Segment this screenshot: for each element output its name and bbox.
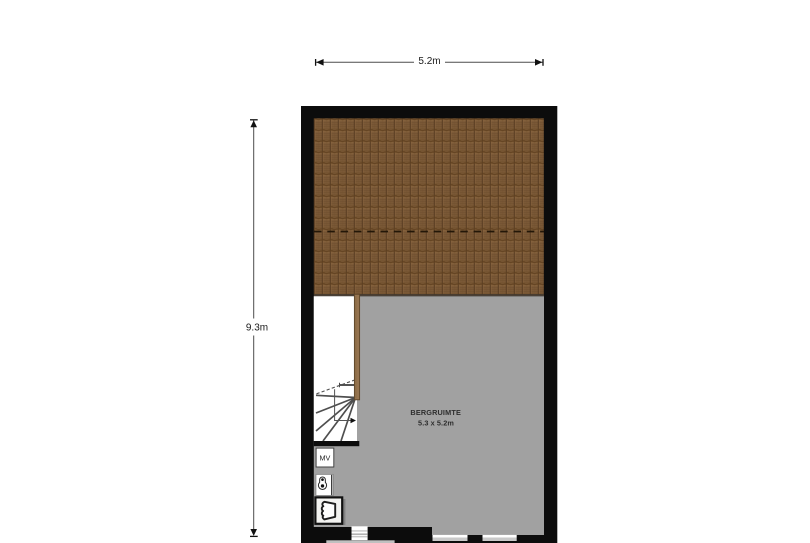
svg-text:5.3 x 5.2m: 5.3 x 5.2m (418, 418, 454, 427)
svg-text:9.3m: 9.3m (246, 323, 268, 334)
svg-text:5.2m: 5.2m (418, 56, 440, 67)
svg-text:MV: MV (320, 454, 331, 463)
svg-text:BERGRUIMTE: BERGRUIMTE (410, 408, 461, 417)
